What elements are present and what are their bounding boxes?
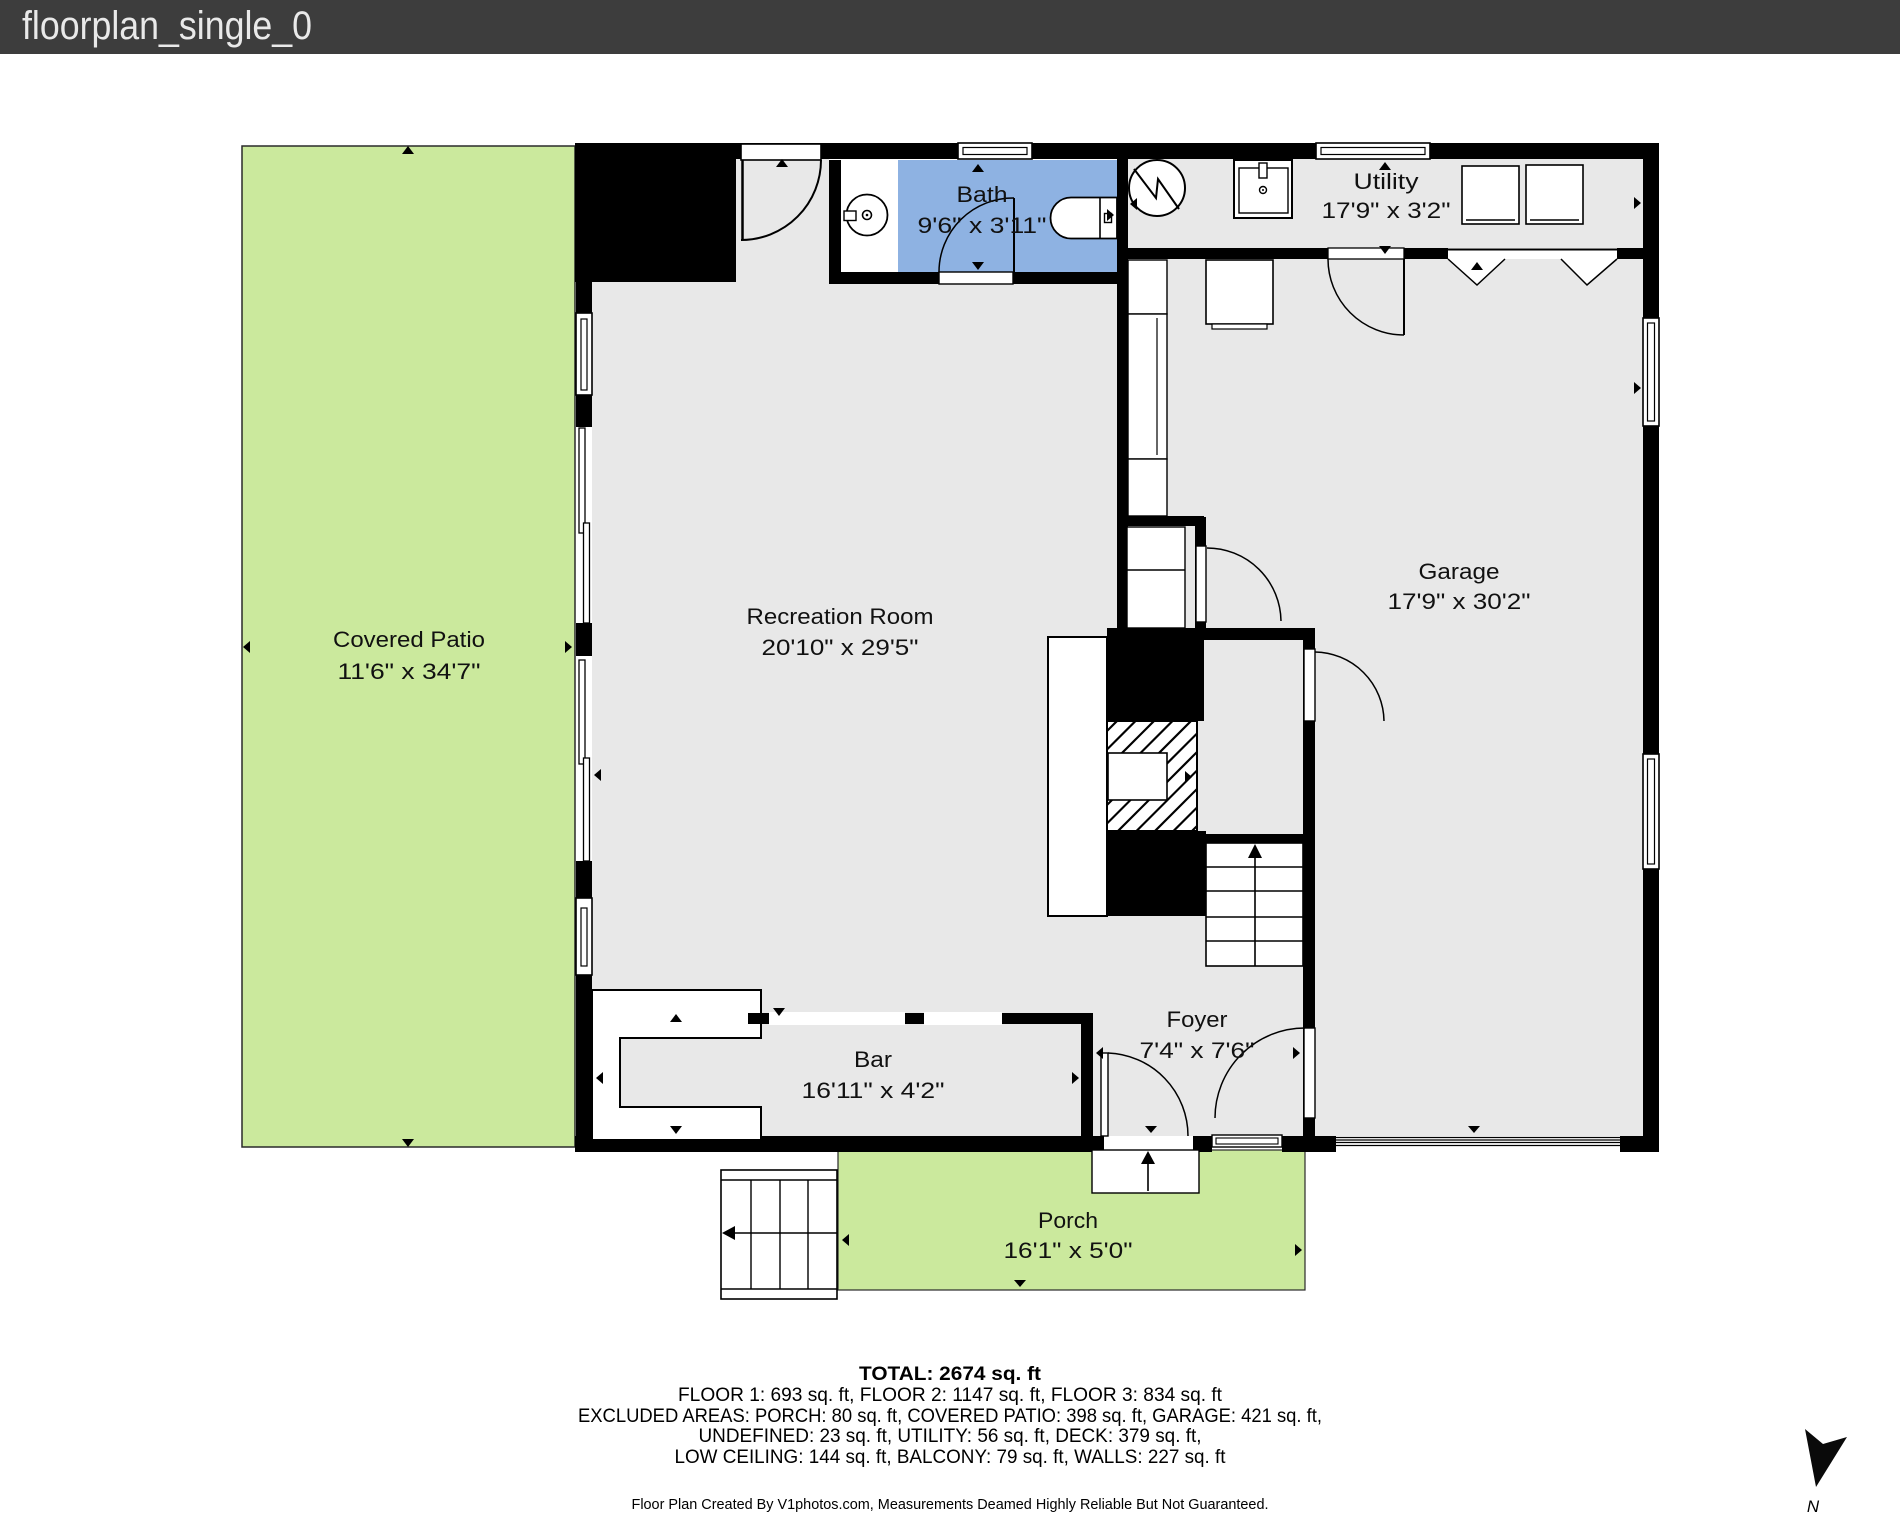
svg-text:Foyer: Foyer [1167, 1007, 1228, 1032]
svg-text:17'9" x 30'2": 17'9" x 30'2" [1388, 589, 1531, 614]
svg-text:Bath: Bath [957, 182, 1008, 207]
svg-text:Covered Patio: Covered Patio [333, 627, 485, 652]
svg-text:16'1" x 5'0": 16'1" x 5'0" [1004, 1238, 1133, 1263]
svg-text:FLOOR 1: 693 sq. ft, FLOOR 2:: FLOOR 1: 693 sq. ft, FLOOR 2: 1147 sq. f… [678, 1384, 1223, 1406]
svg-text:Garage: Garage [1419, 559, 1500, 584]
svg-text:N: N [1807, 1497, 1820, 1516]
svg-text:11'6" x 34'7": 11'6" x 34'7" [338, 659, 481, 684]
svg-text:floorplan_single_0: floorplan_single_0 [22, 4, 312, 48]
svg-text:Utility: Utility [1354, 169, 1419, 194]
svg-text:UNDEFINED: 23 sq. ft, UTILITY:: UNDEFINED: 23 sq. ft, UTILITY: 56 sq. ft… [699, 1425, 1202, 1447]
svg-text:Bar: Bar [854, 1047, 892, 1072]
svg-text:EXCLUDED AREAS: PORCH: 80 sq.: EXCLUDED AREAS: PORCH: 80 sq. ft, COVERE… [578, 1405, 1322, 1427]
svg-text:Floor Plan Created By V1photos: Floor Plan Created By V1photos.com, Meas… [632, 1497, 1269, 1513]
svg-text:7'4" x 7'6": 7'4" x 7'6" [1140, 1038, 1255, 1063]
svg-text:17'9" x 3'2": 17'9" x 3'2" [1322, 198, 1451, 223]
svg-text:Recreation Room: Recreation Room [747, 604, 934, 629]
svg-text:LOW CEILING: 144 sq. ft, BALCO: LOW CEILING: 144 sq. ft, BALCONY: 79 sq.… [675, 1446, 1227, 1468]
svg-text:20'10" x 29'5": 20'10" x 29'5" [762, 635, 919, 660]
svg-text:9'6" x 3'11": 9'6" x 3'11" [918, 213, 1047, 238]
svg-text:TOTAL: 2674 sq. ft: TOTAL: 2674 sq. ft [859, 1363, 1042, 1385]
svg-text:16'11" x 4'2": 16'11" x 4'2" [802, 1078, 945, 1103]
svg-text:Porch: Porch [1038, 1208, 1098, 1233]
